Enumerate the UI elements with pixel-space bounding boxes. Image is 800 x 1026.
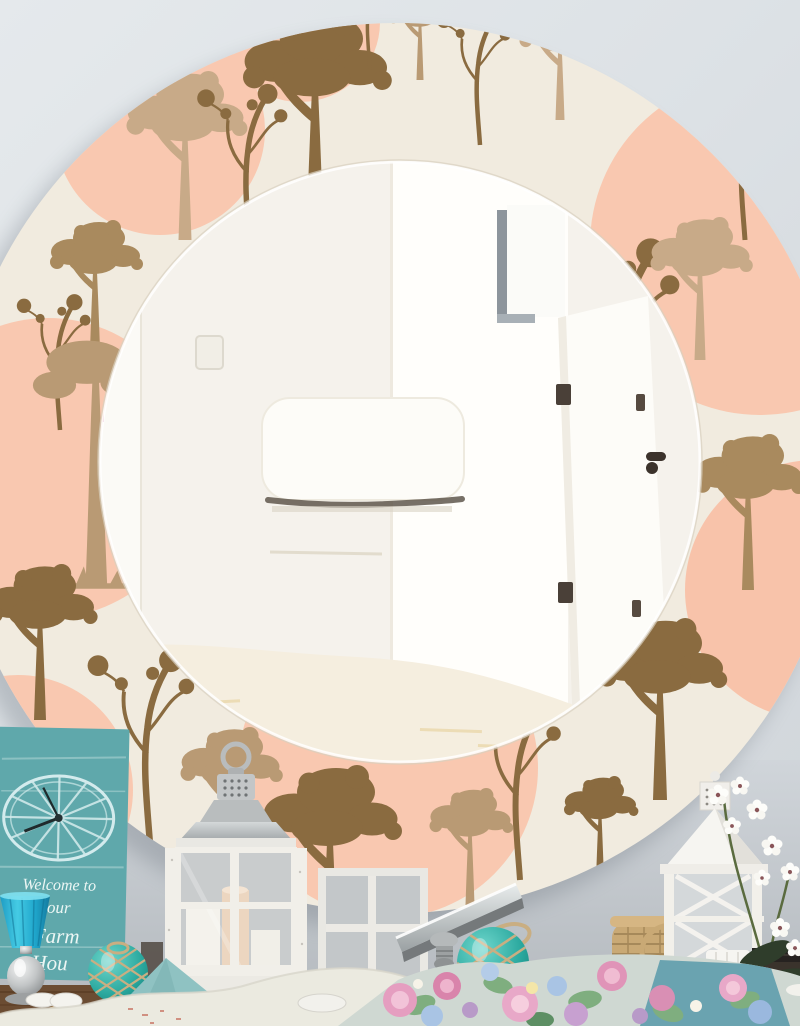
scene-canvas: Welcome to our Farm Hou <box>0 0 800 1026</box>
white-stone-center <box>298 994 346 1012</box>
mirror-reflection <box>100 162 700 762</box>
sign-line-2: our <box>47 898 71 917</box>
product-photo-scene: Welcome to our Farm Hou <box>0 0 800 1026</box>
wagon-wheel-clock <box>3 775 115 861</box>
lantern-vent-crown <box>217 774 255 800</box>
sign-line-1: Welcome to <box>22 876 96 895</box>
candle-white-right <box>251 930 280 970</box>
goblet-chrome-base <box>7 956 45 996</box>
